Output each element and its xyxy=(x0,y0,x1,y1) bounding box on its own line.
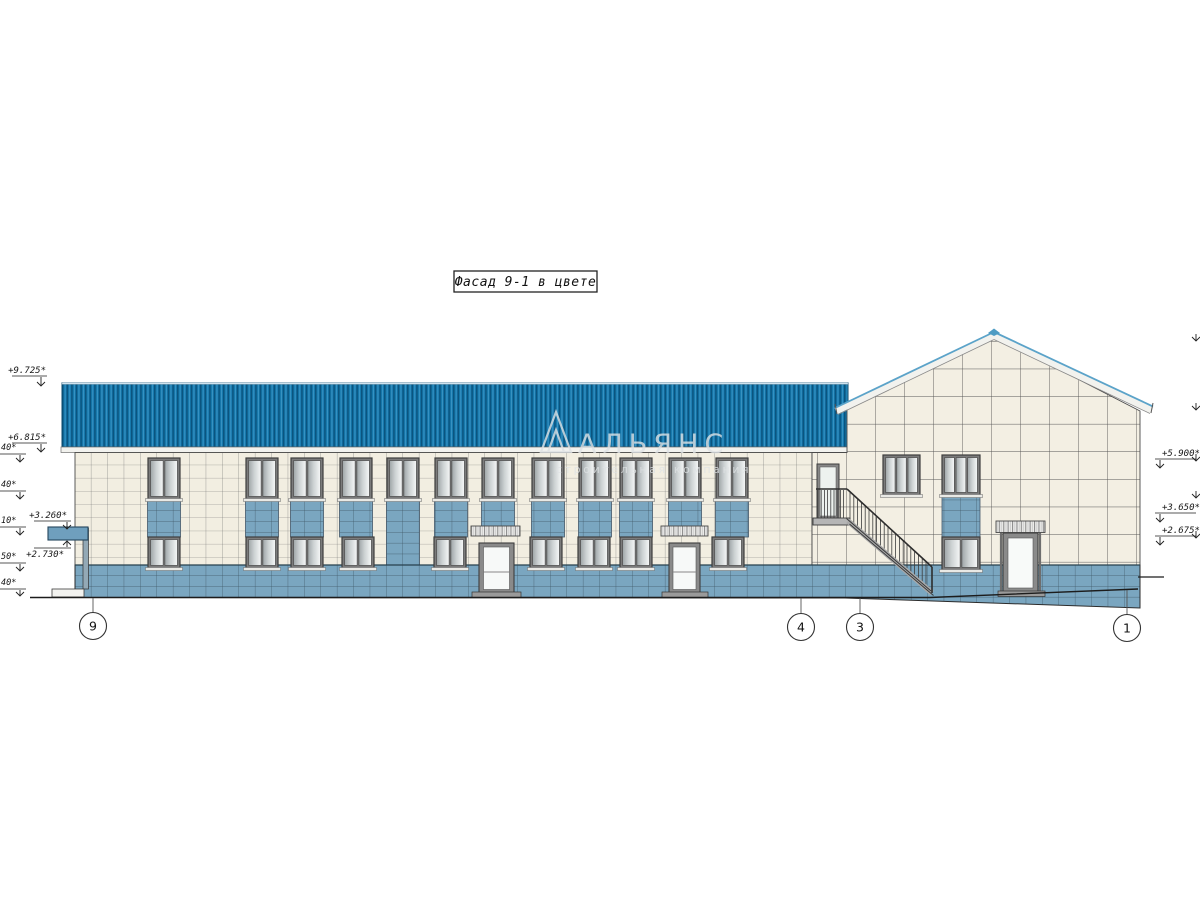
lower-window-pane xyxy=(308,540,321,566)
lower-window-pane xyxy=(437,540,450,566)
window-apron-tiles xyxy=(340,499,373,537)
lower-window-sill xyxy=(244,568,281,571)
lower-window-sill xyxy=(432,568,469,571)
upper-window-pane xyxy=(263,461,276,497)
gable-door-leaf xyxy=(1008,538,1033,588)
upper-window-sill xyxy=(480,499,517,502)
facade-drawing: +9.725* +6.815* +3.260* +2.730* 40* 40* … xyxy=(0,0,1200,900)
lower-window-pane xyxy=(294,540,307,566)
level-arrow xyxy=(63,541,71,547)
door-b-canopy xyxy=(661,526,708,536)
level-label: +2.675* xyxy=(1162,526,1200,536)
upper-window-sill xyxy=(714,499,751,502)
upper-window-pane xyxy=(390,461,403,497)
level-label: +3.260* xyxy=(29,511,67,521)
upper-window-pane xyxy=(249,461,262,497)
level-label-fragment: 40* xyxy=(1,480,16,490)
axis-number: 3 xyxy=(856,620,864,635)
side-canopy-slab xyxy=(48,527,88,540)
level-arrow xyxy=(1192,491,1200,498)
side-entrance-step xyxy=(52,589,84,597)
lower-window-sill xyxy=(576,568,613,571)
upper-window-sill xyxy=(338,499,375,502)
lower-window-pane xyxy=(263,540,276,566)
window-apron-tiles xyxy=(579,499,612,537)
window-apron-tiles xyxy=(246,499,279,537)
lower-window-pane xyxy=(637,540,650,566)
lower-window-pane xyxy=(595,540,608,566)
drawing-canvas: +9.725* +6.815* +3.260* +2.730* 40* 40* … xyxy=(0,0,1200,900)
gable-small-window-sill xyxy=(940,570,983,573)
upper-window-pane xyxy=(357,461,370,497)
lower-window-sill xyxy=(710,568,747,571)
window-apron-tiles xyxy=(482,499,515,526)
gable-door-canopy xyxy=(996,521,1045,533)
level-label: +9.725* xyxy=(8,366,46,376)
upper-window-pane xyxy=(499,461,512,497)
lower-window-pane xyxy=(715,540,728,566)
lower-window-sill xyxy=(528,568,565,571)
lower-window-sill xyxy=(146,568,183,571)
axis-number: 4 xyxy=(797,620,805,635)
window-apron-tiles xyxy=(532,499,565,537)
lower-window-pane xyxy=(451,540,464,566)
upper-window-sill xyxy=(667,499,704,502)
watermark-title: АЛЬЯНС xyxy=(578,429,729,460)
door-a-threshold xyxy=(472,592,521,598)
level-arrow xyxy=(37,377,45,386)
axis-number: 1 xyxy=(1123,621,1131,636)
gable-small-window-pane xyxy=(962,540,978,568)
window-apron-tiles xyxy=(148,499,181,537)
level-label-fragment: 10* xyxy=(1,516,16,526)
level-arrow xyxy=(16,528,24,535)
level-label: +6.815* xyxy=(8,433,46,443)
upper-window-sill xyxy=(289,499,326,502)
upper-window-sill xyxy=(618,499,655,502)
upper-window-pane xyxy=(404,461,417,497)
upper-window-sill xyxy=(433,499,470,502)
lower-window-pane xyxy=(729,540,742,566)
lower-window-sill xyxy=(618,568,655,571)
level-arrow xyxy=(16,590,24,596)
level-arrow xyxy=(16,564,24,571)
gable-window-pane xyxy=(945,458,955,493)
upper-window-pane xyxy=(151,461,164,497)
level-arrow xyxy=(1192,334,1200,341)
gable-window-pane xyxy=(908,458,917,493)
level-label-fragment: 40* xyxy=(1,443,16,453)
upper-window-sill xyxy=(244,499,281,502)
gable-window-sill xyxy=(881,495,923,498)
main-roof-sheet xyxy=(62,383,848,447)
upper-window-pane xyxy=(308,461,321,497)
level-arrow xyxy=(1156,537,1164,545)
level-label: +3.650* xyxy=(1162,503,1200,513)
upper-window-pane xyxy=(535,461,548,497)
upper-window-sill xyxy=(146,499,183,502)
door-a-canopy xyxy=(471,526,520,536)
upper-window-pane xyxy=(438,461,451,497)
lower-window-pane xyxy=(151,540,164,566)
window-apron-tiles xyxy=(387,499,420,565)
gable-window-pane xyxy=(886,458,895,493)
window-apron-tiles xyxy=(291,499,324,537)
upper-window-sill xyxy=(385,499,422,502)
eave-fascia xyxy=(61,447,848,453)
gable-entrance-door xyxy=(996,521,1045,597)
axis-number: 9 xyxy=(89,619,97,634)
door-a-leaf xyxy=(484,547,510,590)
window-apron-tiles xyxy=(435,499,468,537)
lower-window-pane xyxy=(581,540,594,566)
level-arrow xyxy=(16,455,24,462)
lower-window-sill xyxy=(289,568,326,571)
level-arrow xyxy=(37,444,45,452)
lower-window-pane xyxy=(623,540,636,566)
lower-window-pane xyxy=(359,540,372,566)
upper-window-pane xyxy=(485,461,498,497)
level-arrow xyxy=(1156,514,1164,522)
drawing-title: Фасад 9-1 в цвете xyxy=(455,275,597,290)
upper-window-pane xyxy=(452,461,465,497)
gable-small-window-pane xyxy=(945,540,961,568)
level-label: +2.730* xyxy=(26,550,64,560)
level-label-fragment: 40* xyxy=(1,578,16,588)
gable-window-pane xyxy=(968,458,978,493)
lower-window-pane xyxy=(533,540,546,566)
gable-window-pane xyxy=(897,458,906,493)
window-apron-tiles xyxy=(669,499,702,526)
level-arrow xyxy=(1156,460,1164,468)
door-b-threshold xyxy=(662,592,708,598)
watermark-subtitle: строительная компания xyxy=(556,463,751,476)
window-apron-tiles xyxy=(620,499,653,537)
upper-window-pane xyxy=(165,461,178,497)
lower-window-pane xyxy=(547,540,560,566)
upper-window-sill xyxy=(530,499,567,502)
window-apron-tiles xyxy=(716,499,749,537)
level-arrow xyxy=(16,492,24,499)
level-label: +5.900* xyxy=(1162,449,1200,459)
main-roof xyxy=(61,382,848,452)
upper-window-pane xyxy=(343,461,356,497)
stair-landing xyxy=(813,518,850,525)
door-b-leaf xyxy=(673,547,696,590)
window-apron-tiles xyxy=(942,495,980,537)
lower-window-pane xyxy=(165,540,178,566)
lower-window-pane xyxy=(345,540,358,566)
title-block: Фасад 9-1 в цвете xyxy=(454,271,597,292)
main-roof-ridge-trim xyxy=(62,382,848,384)
upper-window-pane xyxy=(294,461,307,497)
lower-window-pane xyxy=(249,540,262,566)
gable-window-pane xyxy=(956,458,966,493)
gable-window-sill xyxy=(940,495,983,498)
lower-window-sill xyxy=(340,568,377,571)
level-arrow xyxy=(1192,403,1200,410)
upper-window-sill xyxy=(577,499,614,502)
level-label-fragment: 50* xyxy=(1,552,16,562)
